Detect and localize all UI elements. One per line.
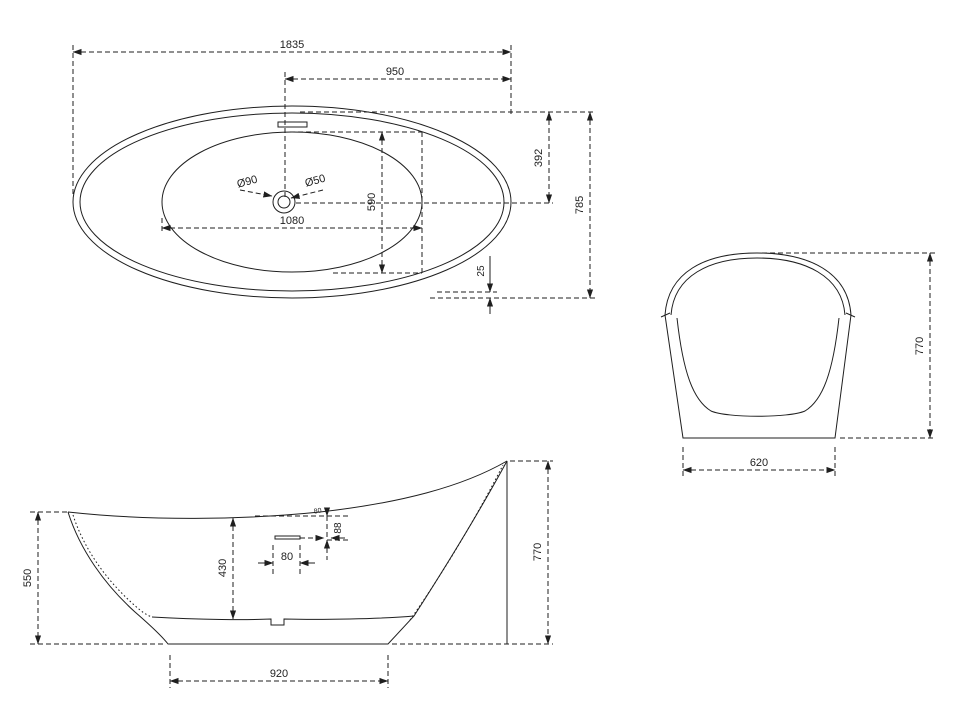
shell-inner-surface-left [73,515,152,617]
technical-drawing: 1835 950 392 785 25 590 1080 Ø90 Ø50 [0,0,970,721]
tub-basin-outline [162,132,422,272]
dim-end-height: 770 [914,337,926,355]
dim-end-base-width: 620 [750,457,768,469]
dim-inner-width: 590 [366,193,378,211]
tub-inner-rim-outline [80,113,504,291]
drain-inner-circle [278,196,290,208]
dim-inner-length: 1080 [280,215,304,227]
dim-drain-to-end: 950 [386,66,404,78]
dim-overflow-note: 80 [313,507,322,515]
tub-top-rim-edge [68,461,507,518]
dim-rim-height-high: 770 [532,543,544,561]
tub-end-outline [665,253,851,438]
side-view: 550 770 430 88 80 80 920 [22,461,553,688]
tub-outer-rim-outline [73,106,511,298]
top-view: 1835 950 392 785 25 590 1080 Ø90 Ø50 [73,39,595,314]
dim-overall-length: 1835 [280,39,304,51]
overflow-slot-plan [278,122,307,127]
drain-outer-circle [273,191,295,213]
dim-bottom-rim-offset: 25 [476,265,487,277]
dim-overflow-width: 80 [281,551,293,563]
dim-overall-width: 785 [574,196,586,214]
leader-line-drain [240,190,272,196]
dim-waste-diameter: Ø50 [304,173,327,190]
dim-rim-height-low: 550 [22,569,34,587]
tub-end-basin [677,318,839,416]
end-view: 770 620 [661,253,935,478]
dim-base-length: 920 [270,668,288,680]
overflow-slot-side [275,536,300,539]
dim-inner-depth: 430 [217,559,229,577]
leader-line-waste [291,190,323,198]
basin-bottom-line [152,616,414,625]
dim-center-to-edge: 392 [533,149,545,167]
dim-overflow-below-rim: 88 [333,522,344,534]
drawing-sheet: 1835 950 392 785 25 590 1080 Ø90 Ø50 [0,0,970,721]
shell-inner-surface-right [410,465,503,620]
tub-end-rim-inner-arc [671,258,845,315]
dim-drain-diameter: Ø90 [236,174,259,191]
